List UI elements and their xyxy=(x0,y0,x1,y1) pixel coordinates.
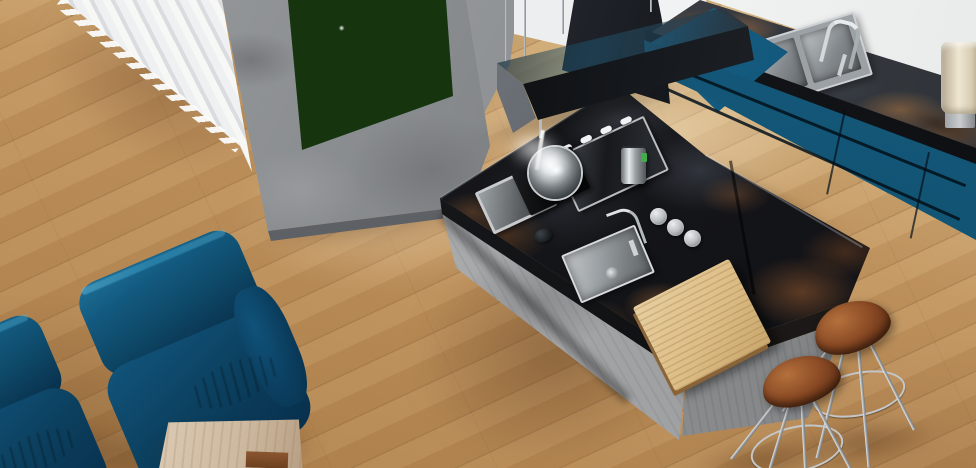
control-knob xyxy=(650,208,667,225)
hood-rod xyxy=(650,0,652,12)
kitchen-scene xyxy=(0,0,976,468)
control-knob xyxy=(684,230,701,247)
hood-rod xyxy=(562,0,564,34)
table-lamp-shade xyxy=(941,42,976,114)
hood-rod xyxy=(505,0,507,62)
hood-rod xyxy=(524,0,526,58)
sink-drain xyxy=(604,265,621,282)
coffee-table-support xyxy=(246,451,289,468)
canister-green-clip xyxy=(641,153,647,162)
steam-2 xyxy=(530,150,564,172)
control-knob xyxy=(667,219,684,236)
